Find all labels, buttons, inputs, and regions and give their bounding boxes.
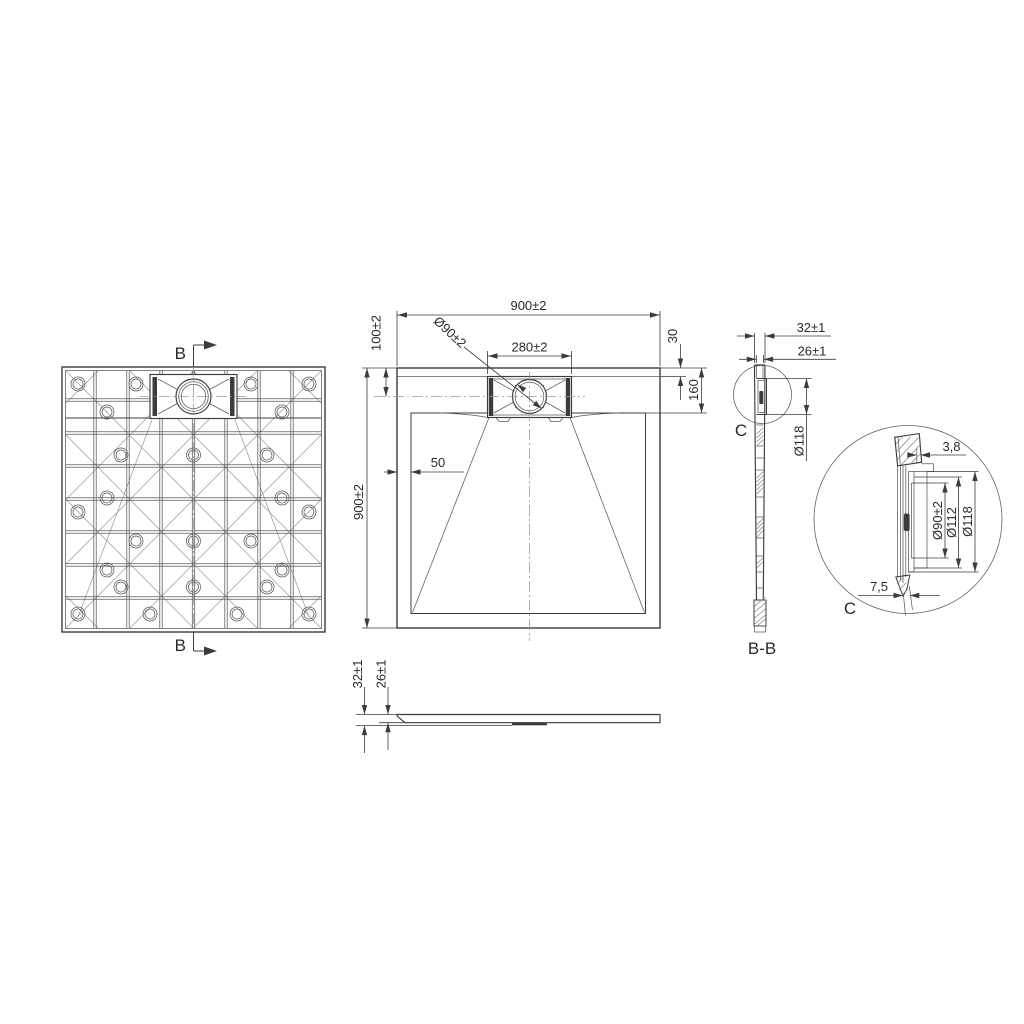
detail-rim-block <box>895 434 922 466</box>
detail-marker-letter: C <box>735 421 747 440</box>
bottom-view: B B <box>62 341 325 656</box>
dim-text-front-total-height: 32±1 <box>350 660 365 689</box>
section-marker-bottom: B <box>175 632 217 656</box>
dim-text-drain-diameter: Ø90±2 <box>431 313 470 351</box>
dim-text-channel-width: 280±2 <box>511 340 547 355</box>
section-marker-top: B <box>175 341 217 368</box>
dim-text-rim-to-basin: 160 <box>686 379 701 401</box>
plan-view: 900±2 100±2 Ø90±2 280±2 30 <box>351 298 707 641</box>
section-hatch <box>757 428 764 568</box>
dim-basin-inset: 50 <box>384 455 464 475</box>
dim-text-rim-to-channel: 30 <box>665 329 680 343</box>
basin-outline <box>411 413 646 614</box>
dim-text-section-rim: 26±1 <box>798 344 827 359</box>
dim-detail-bore: Ø90±2 <box>912 483 949 558</box>
dim-text-plan-width: 900±2 <box>510 298 546 313</box>
dim-text-detail-flange: Ø118 <box>960 506 975 537</box>
dim-channel-width: 280±2 <box>488 340 572 375</box>
section-title: B-B <box>748 639 776 658</box>
front-view: 32±1 26±1 <box>350 660 660 753</box>
front-profile <box>397 715 660 723</box>
dim-plan-height: 900±2 <box>351 368 397 628</box>
technical-drawing-page: B B 90 <box>0 0 1024 1024</box>
dim-text-front-rim-height: 26±1 <box>374 660 389 689</box>
section-strip-inner <box>757 365 764 379</box>
dim-section-rim-thickness: 26±1 <box>739 344 836 364</box>
view-direction-arrow-top <box>204 341 217 350</box>
dim-rim-to-basin: 160 <box>646 368 708 413</box>
dim-text-section-flange: Ø118 <box>792 426 807 457</box>
shower-tray-drawing: B B 90 <box>0 0 1024 1024</box>
section-foot <box>754 597 766 632</box>
dim-text-detail-foot: 7,5 <box>870 579 888 594</box>
front-drain-boss <box>512 723 547 726</box>
dim-front-total-height: 32±1 <box>350 660 367 753</box>
dim-front-rim-height: 26±1 <box>374 660 391 750</box>
section-drain-flange <box>757 379 767 415</box>
detail-wall-foot <box>896 466 913 616</box>
detail-deck-lines <box>909 464 934 472</box>
section-letter-top: B <box>175 344 186 363</box>
section-letter-bottom: B <box>175 636 186 655</box>
dim-text-drain-offset: 100±2 <box>369 315 384 351</box>
dim-text-plan-height: 900±2 <box>351 484 366 520</box>
detail-gasket <box>904 514 910 532</box>
dim-drain-offset: 100±2 <box>369 315 389 397</box>
dim-text-basin-inset: 50 <box>431 455 445 470</box>
dim-section-flange-diameter: Ø118 <box>767 379 812 462</box>
dim-text-detail-bore: Ø90±2 <box>930 501 945 540</box>
dim-text-detail-seat: Ø112 <box>944 507 959 538</box>
dim-rim-to-channel: 30 <box>660 329 686 400</box>
detail-view-c: 3,8 Ø90±2 Ø112 Ø118 7,5 C <box>814 426 1002 619</box>
section-view-bb: C 32±1 26±1 Ø118 B-B <box>734 320 837 658</box>
dim-detail-wall: 3,8 <box>907 439 966 458</box>
basin-slope-lines <box>413 418 645 613</box>
view-direction-arrow-bottom <box>204 647 217 656</box>
dim-text-section-total: 32±1 <box>797 320 826 335</box>
dim-text-detail-wall: 3,8 <box>942 439 960 454</box>
detail-title: C <box>844 599 856 618</box>
